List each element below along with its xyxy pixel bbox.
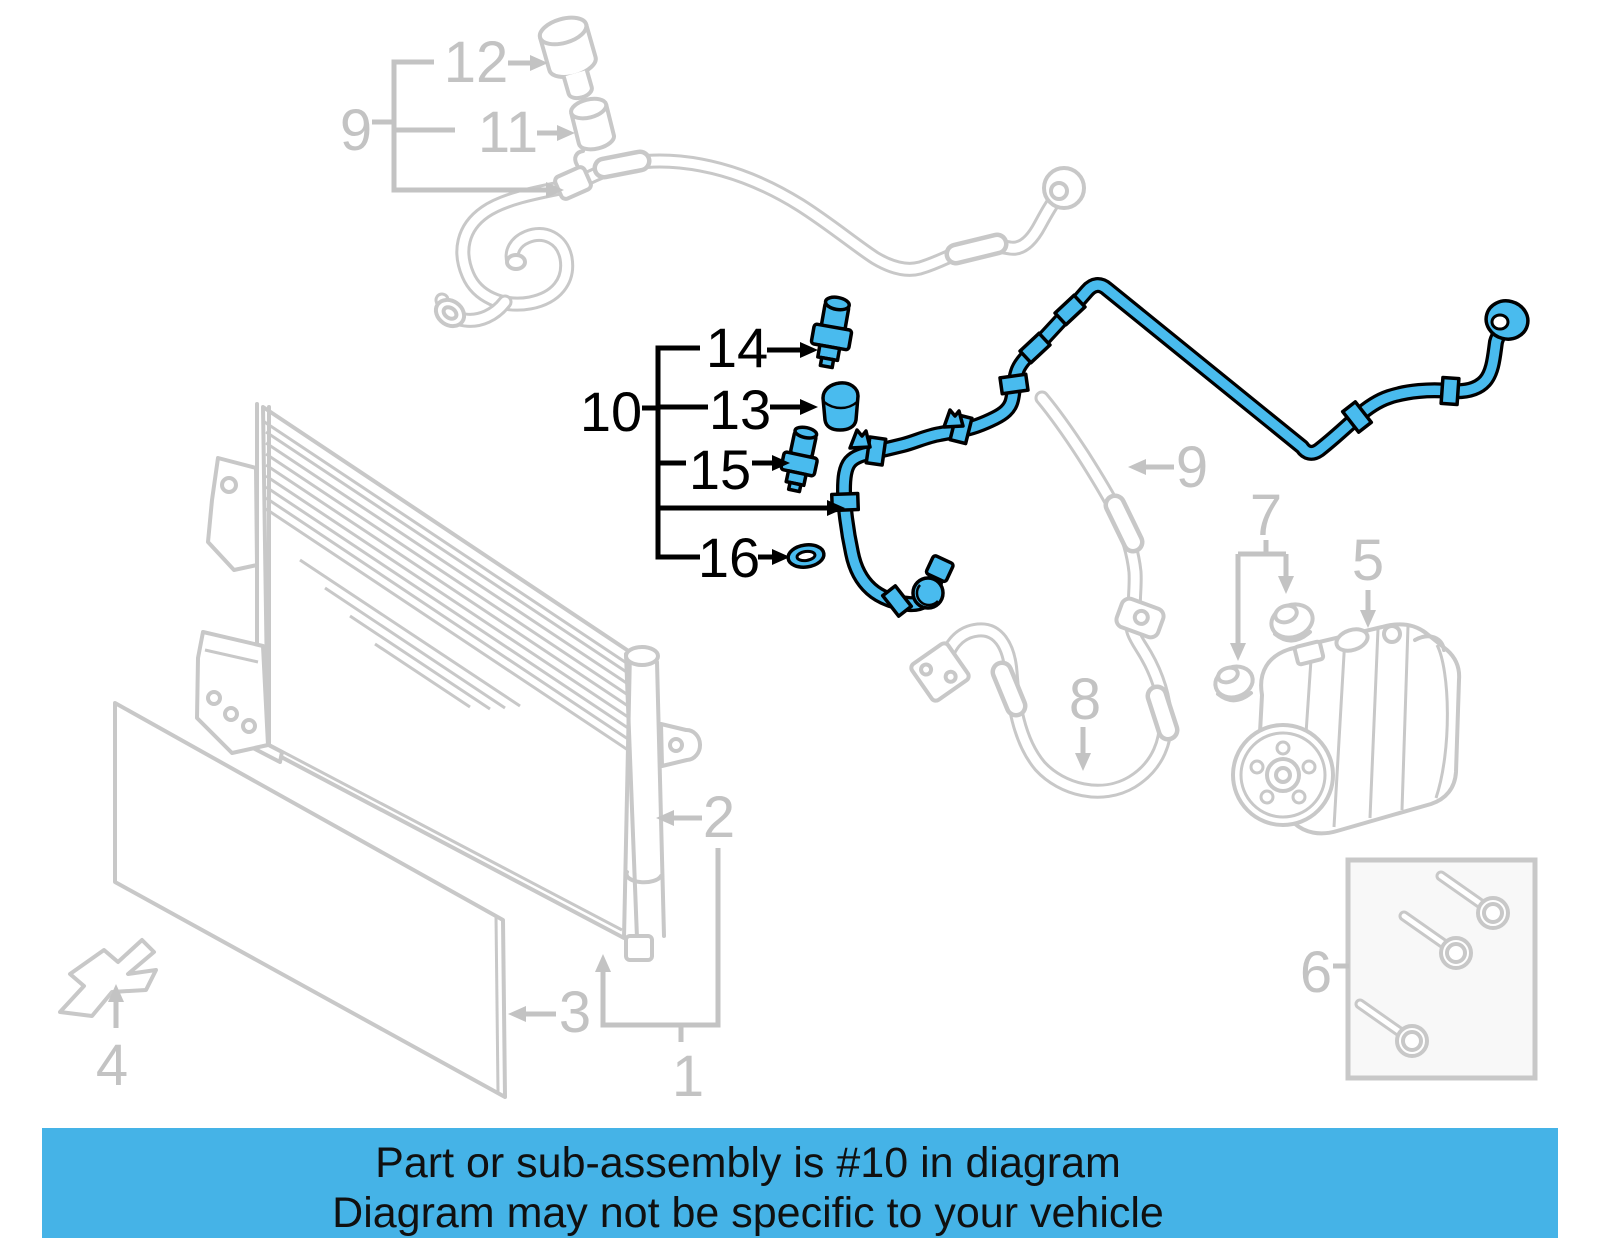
callout-13-label: 13: [709, 378, 771, 441]
cap-13: [823, 383, 858, 430]
callout-16-label: 16: [698, 526, 760, 589]
callout-1-label: 1: [672, 1044, 704, 1109]
callout-10-label: 10: [580, 380, 642, 443]
banner-line-2: Diagram may not be specific to your vehi…: [332, 1189, 1164, 1237]
bolt-box-6: [1348, 860, 1535, 1078]
banner: Part or sub-assembly is #10 in diagram D…: [42, 1128, 1558, 1238]
parts-diagram-svg: 9 12 11 9 7 5 8 2 3 4 1 6: [0, 0, 1600, 1249]
callout-3-label: 3: [559, 980, 591, 1045]
banner-line-1: Part or sub-assembly is #10 in diagram: [375, 1139, 1121, 1187]
callout-9b-label: 9: [1176, 435, 1208, 500]
parts-diagram-page: 9 12 11 9 7 5 8 2 3 4 1 6: [0, 0, 1600, 1249]
callout-5-label: 5: [1352, 528, 1384, 593]
callout-12-label: 12: [444, 30, 509, 95]
callout-2-label: 2: [703, 785, 735, 850]
callout-15-label: 15: [689, 438, 751, 501]
callout-11-label: 11: [478, 100, 538, 165]
callout-7-label: 7: [1250, 483, 1282, 548]
callout-9a-label: 9: [340, 98, 372, 163]
callout-14-label: 14: [706, 316, 768, 379]
callout-4-label: 4: [96, 1033, 128, 1098]
callout-8-label: 8: [1069, 667, 1101, 732]
callout-6-label: 6: [1300, 940, 1332, 1005]
